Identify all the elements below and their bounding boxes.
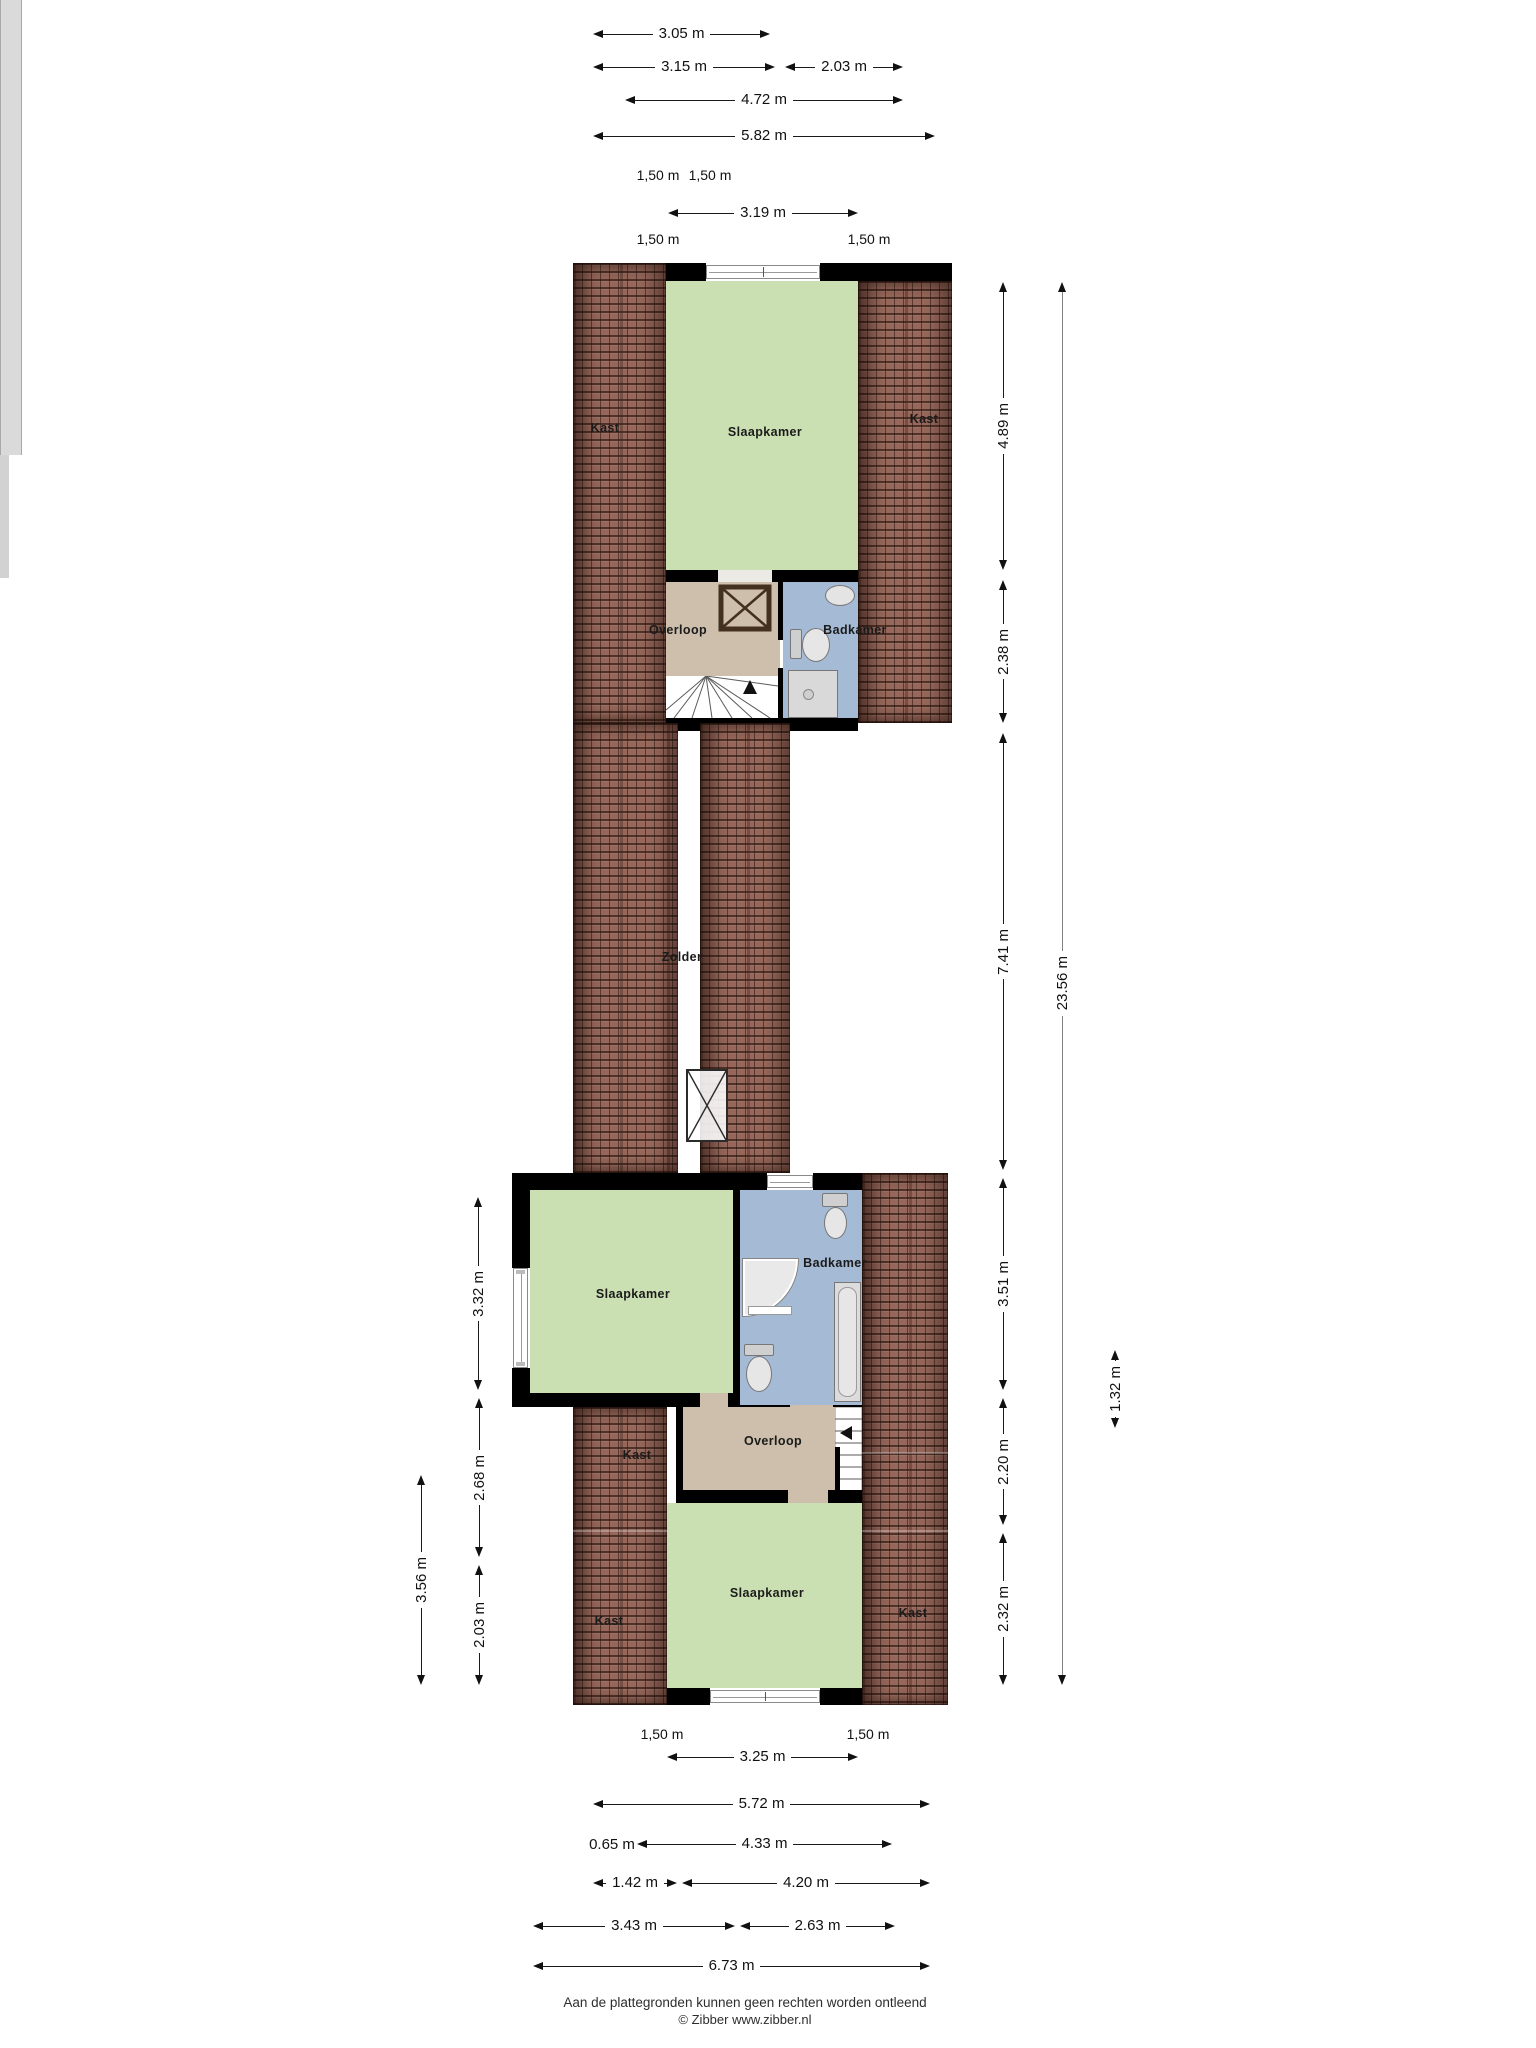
room-label-kast-low-left: Kast (595, 1614, 624, 1628)
door-opening (718, 570, 772, 582)
dim-text-1-50-m-c: 1,50 m (637, 231, 680, 247)
dim-4-89-m: 4.89 m (996, 282, 1010, 570)
room-label-slaapkamer-low: Slaapkamer (730, 1586, 804, 1600)
dim-3-43-m: 3.43 m (533, 1919, 735, 1933)
dim-5-72-m: 5.72 m (593, 1797, 930, 1811)
window-bottom (710, 1690, 820, 1703)
wall (512, 1368, 530, 1393)
dim-7-41-m: 7.41 m (996, 733, 1010, 1170)
zolder-corridor (0, 13, 22, 455)
dim-4-72-m: 4.72 m (625, 93, 903, 107)
wall (820, 263, 952, 281)
wall (778, 668, 783, 718)
roof-area-low-right (862, 1173, 948, 1705)
wall (778, 582, 783, 640)
room-label-overloop-low: Overloop (744, 1434, 802, 1448)
room-overloop-low (683, 1407, 835, 1490)
dim-2-63-m: 2.63 m (740, 1919, 895, 1933)
corridor-gap (0, 0, 22, 13)
room-label-badkamer-low: Badkamer (803, 1256, 867, 1270)
dim-3-56-m: 3.56 m (414, 1475, 428, 1685)
shower-icon (788, 670, 838, 718)
dim-text-0-65-m: 0.65 m (589, 1836, 635, 1853)
dim-3-51-m: 3.51 m (996, 1178, 1010, 1390)
toilet-icon (790, 629, 802, 659)
room-label-kast-top-right: Kast (910, 412, 939, 426)
wall (512, 1173, 767, 1190)
wall (667, 1688, 710, 1705)
dim-text-1-50-m-d: 1,50 m (848, 231, 891, 247)
dim-2-68-m: 2.68 m (472, 1398, 486, 1557)
dim-3-19-m: 3.19 m (668, 206, 858, 220)
dim-text-1-50-m-a: 1,50 m (637, 167, 680, 183)
room-label-overloop-top: Overloop (649, 623, 707, 637)
dim-4-20-m: 4.20 m (682, 1876, 930, 1890)
dim-2-03-m-left: 2.03 m (472, 1565, 486, 1685)
roof-area-zolder-left (573, 723, 678, 1173)
wall (666, 263, 706, 281)
toilet-icon (822, 1193, 848, 1207)
wall (733, 1190, 740, 1393)
door-opening (700, 1393, 728, 1407)
stairs-icon (666, 676, 778, 718)
dim-2-38-m: 2.38 m (996, 580, 1010, 723)
toilet-bowl-icon (824, 1207, 847, 1239)
room-label-kast-mid: Kast (623, 1448, 652, 1462)
roof-area-low-left (573, 1407, 667, 1705)
skylight-x-icon (718, 584, 772, 632)
dim-3-15-m: 3.15 m (593, 60, 775, 74)
dim-6-73-m: 6.73 m (533, 1959, 930, 1973)
footer-disclaimer: Aan de plattegronden kunnen geen rechten… (445, 1995, 1045, 2010)
bidet-bowl-icon (746, 1356, 772, 1392)
room-label-slaapkamer-top: Slaapkamer (728, 425, 802, 439)
footer-copyright: © Zibber www.zibber.nl (445, 2012, 1045, 2027)
dim-text-1-50-m-bottom-a: 1,50 m (641, 1726, 684, 1742)
door-opening (788, 1490, 828, 1503)
bidet-icon (744, 1344, 774, 1356)
dim-text-1-50-m-bottom-b: 1,50 m (847, 1726, 890, 1742)
room-label-kast-top-left: Kast (591, 421, 620, 435)
dim-1-32-m: 1.32 m (1108, 1350, 1122, 1428)
stairs-icon (835, 1407, 862, 1492)
wall (820, 1688, 862, 1705)
dim-3-32-m: 3.32 m (471, 1197, 485, 1390)
window-low-top (767, 1175, 813, 1188)
shower-ledge (748, 1306, 792, 1315)
room-label-kast-low-right: Kast (899, 1606, 928, 1620)
dim-text-1-50-m-b: 1,50 m (689, 167, 732, 183)
roof-area-top-left (573, 263, 666, 723)
floor-plan-page: 3.05 m 3.15 m 2.03 m 4.72 m 5.82 m 1,50 … (0, 0, 1536, 2048)
dim-3-05-m: 3.05 m (593, 27, 770, 41)
room-label-slaapkamer-mid: Slaapkamer (596, 1287, 670, 1301)
knee-wall (0, 455, 9, 578)
roof-area-top-right (858, 281, 952, 723)
window-left (513, 1268, 528, 1368)
dim-4-33-m: 4.33 m (637, 1837, 892, 1851)
room-label-badkamer-top: Badkamer (823, 623, 887, 637)
room-label-zolder: Zolder (662, 950, 703, 964)
footer: Aan de plattegronden kunnen geen rechten… (445, 1995, 1045, 2027)
skylight-x-icon (686, 1069, 728, 1142)
dim-2-32-m: 2.32 m (996, 1533, 1010, 1685)
window-top (706, 265, 820, 279)
wall (683, 1490, 862, 1503)
sink-icon (825, 585, 855, 606)
wall (512, 1190, 530, 1268)
dim-2-20-m: 2.20 m (996, 1398, 1010, 1525)
dim-1-42-m: 1.42 m (593, 1876, 677, 1890)
dim-2-03-m: 2.03 m (785, 60, 903, 74)
wall (813, 1173, 862, 1190)
dim-3-25-m: 3.25 m (667, 1750, 858, 1764)
bathtub-icon (834, 1282, 861, 1402)
dim-23-56-m: 23.56 m (1055, 282, 1069, 1685)
dim-5-82-m: 5.82 m (593, 129, 935, 143)
